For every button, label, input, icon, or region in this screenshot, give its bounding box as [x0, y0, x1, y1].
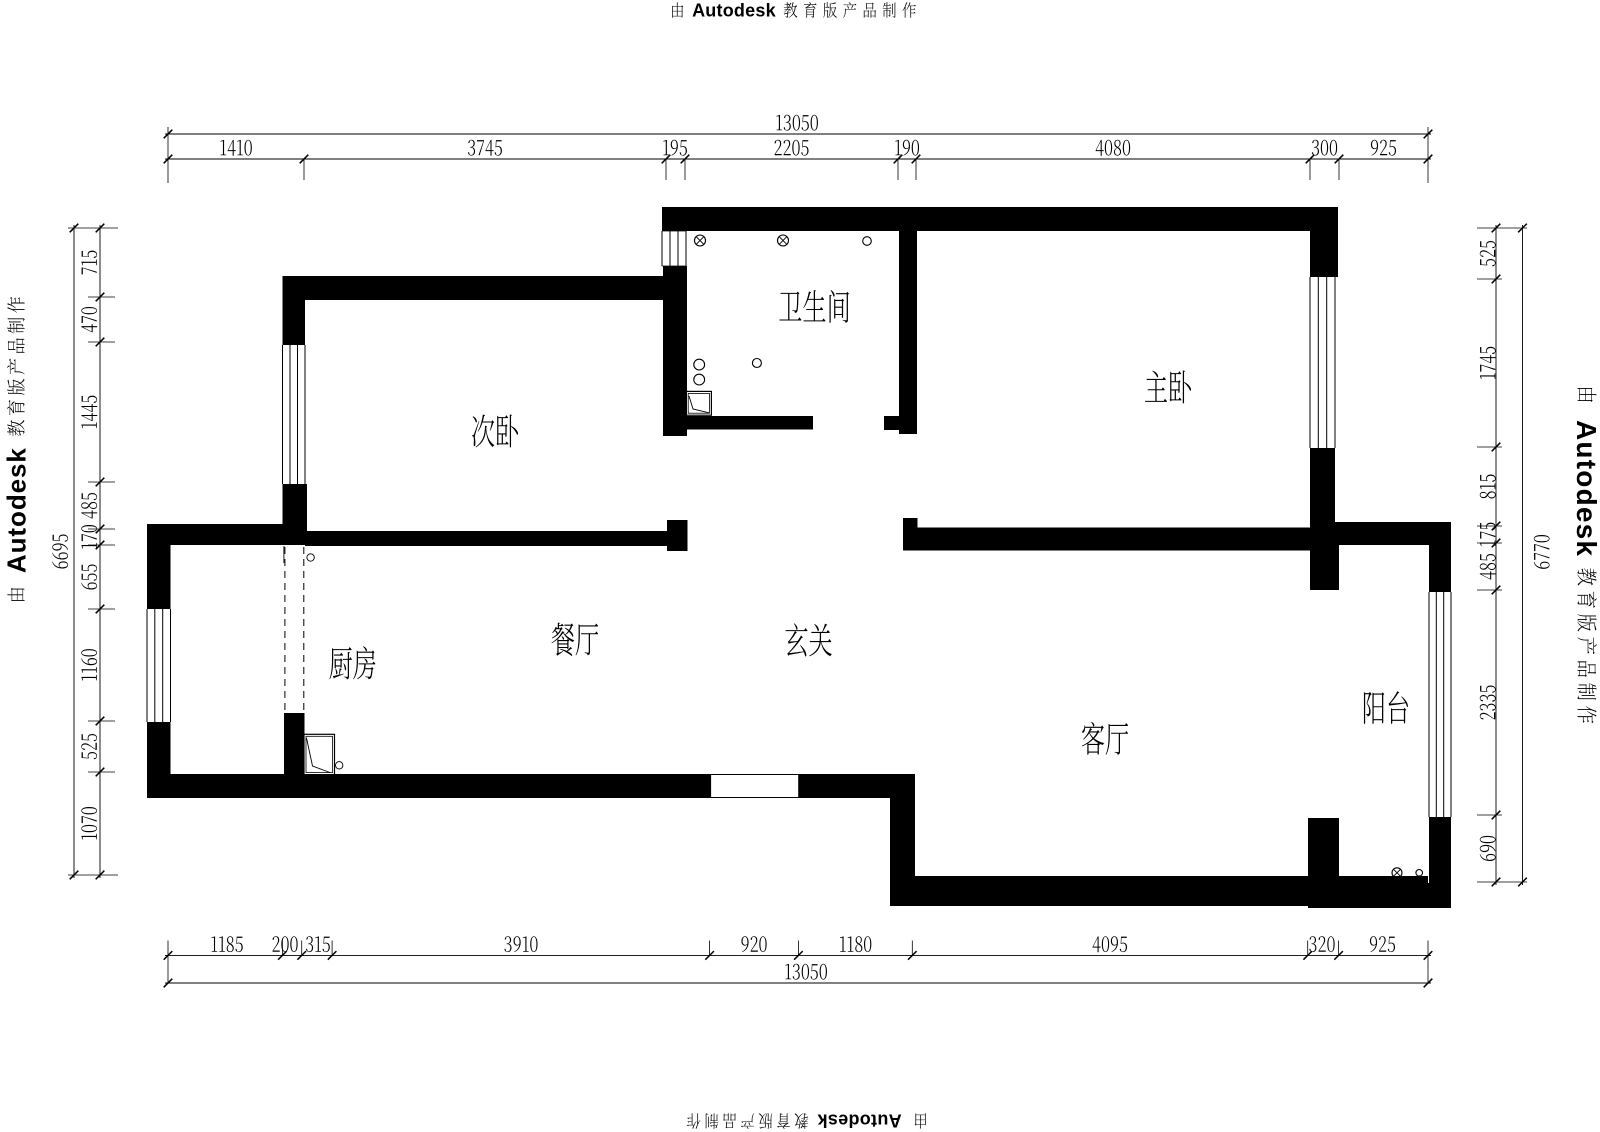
- svg-text:Autodesk: Autodesk: [817, 1110, 902, 1130]
- svg-text:Autodesk: Autodesk: [1571, 420, 1600, 556]
- svg-text:Autodesk: Autodesk: [2, 448, 32, 574]
- svg-text:Autodesk: Autodesk: [692, 1, 776, 21]
